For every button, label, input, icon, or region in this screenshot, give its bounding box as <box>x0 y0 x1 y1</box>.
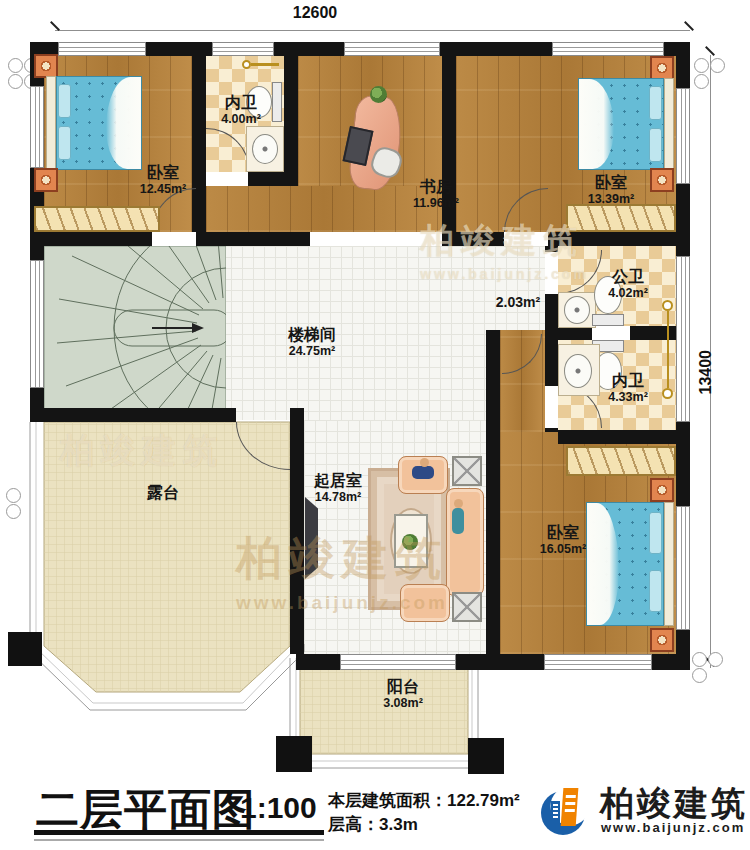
floor-plan-sheet: 12600 13400 <box>0 0 750 850</box>
pillow <box>649 86 662 120</box>
toilet <box>246 86 272 118</box>
pillar <box>276 736 312 772</box>
staircase <box>44 246 226 410</box>
towel-ring-icon <box>242 60 251 69</box>
floor-height-line: 层高：3.3m <box>328 813 418 836</box>
bed-headboard <box>46 76 56 170</box>
wall <box>545 294 558 386</box>
wall <box>545 246 558 252</box>
nightstand <box>650 168 674 192</box>
sink <box>252 134 278 164</box>
wall <box>652 654 690 670</box>
window <box>676 256 690 422</box>
floor-area-line: 本层建筑面积：122.79m² <box>328 789 520 812</box>
wall <box>456 654 544 670</box>
pillow <box>649 128 662 162</box>
toilet-tank <box>592 314 624 326</box>
wall <box>284 56 298 172</box>
sofa <box>400 584 450 622</box>
wall <box>486 330 500 654</box>
wardrobe <box>566 204 676 232</box>
shower-head-icon <box>662 388 673 399</box>
wall <box>558 430 690 444</box>
window <box>544 654 652 670</box>
shower-head-icon <box>662 300 673 311</box>
wall <box>296 654 340 670</box>
bed-blanket <box>579 79 614 169</box>
pillow <box>58 126 71 160</box>
floor-height-value: 3.3m <box>379 815 418 834</box>
pillar <box>8 632 42 666</box>
toilet-tank <box>272 82 282 122</box>
nightstand <box>34 54 58 78</box>
pillow <box>649 570 662 612</box>
drain-pipe-icon <box>692 652 707 667</box>
floor-area-value: 122.79m² <box>447 791 520 810</box>
wardrobe <box>34 206 160 232</box>
person-head <box>454 499 463 508</box>
window <box>58 42 146 56</box>
person-figure <box>452 508 464 534</box>
window <box>30 260 44 388</box>
towel-bar <box>251 63 279 66</box>
wardrobe <box>566 446 676 476</box>
drain-pipe-icon <box>694 74 709 89</box>
dimension-top: 12600 <box>265 4 365 22</box>
dimension-right: 13400 <box>697 350 715 395</box>
side-table <box>452 456 482 486</box>
nightstand <box>650 478 674 502</box>
side-table <box>452 592 482 622</box>
company-url: www.baijunjz.com <box>601 820 745 835</box>
window <box>30 86 44 168</box>
wall <box>548 232 676 246</box>
tv <box>305 497 318 579</box>
window <box>212 42 274 56</box>
floor-area-label: 本层建筑面积： <box>328 791 447 810</box>
nightstand <box>34 168 58 192</box>
floor-height-label: 层高： <box>328 815 379 834</box>
drain-pipe-icon <box>6 504 21 519</box>
wall <box>545 428 558 432</box>
pillar <box>468 738 504 774</box>
wall <box>196 232 310 246</box>
wall <box>248 172 298 186</box>
wall <box>630 326 676 340</box>
sheet-scale: 1:100 <box>240 791 317 825</box>
person-figure <box>412 466 434 479</box>
drain-pipe-icon <box>694 58 709 73</box>
window <box>344 42 440 56</box>
sliding-door <box>340 654 456 670</box>
drain-pipe-icon <box>8 74 23 89</box>
bed-headboard <box>664 502 674 626</box>
wall <box>442 56 456 246</box>
drain-pipe-icon <box>692 668 707 683</box>
dimension-line-top <box>55 30 690 31</box>
bed-blanket <box>587 503 619 625</box>
window <box>676 88 690 184</box>
title-rule <box>34 830 324 835</box>
sink <box>564 354 592 388</box>
wall <box>30 408 236 422</box>
bed-blanket <box>106 77 141 169</box>
drain-pipe-icon <box>6 488 21 503</box>
sink <box>564 296 590 324</box>
person-head <box>420 458 429 467</box>
pillow <box>58 84 71 118</box>
company-logo-icon <box>538 779 594 839</box>
plant-icon <box>370 86 387 103</box>
plant-icon <box>402 534 418 550</box>
wall <box>192 172 206 186</box>
pillow <box>649 512 662 554</box>
bed-headboard <box>664 78 674 170</box>
wall <box>30 232 152 246</box>
sofa <box>446 488 484 596</box>
drain-pipe-icon <box>710 58 725 73</box>
window <box>676 506 690 630</box>
title-rule-thin <box>34 839 324 841</box>
wall <box>290 408 304 654</box>
wall <box>442 232 504 246</box>
wall <box>558 326 592 340</box>
drain-pipe-icon <box>8 58 23 73</box>
nightstand <box>650 56 674 80</box>
floor-corridor <box>206 186 442 232</box>
toilet <box>594 276 622 314</box>
shower-rod <box>667 311 669 388</box>
drain-pipe-icon <box>708 652 723 667</box>
nightstand <box>650 628 674 652</box>
window <box>552 42 664 56</box>
